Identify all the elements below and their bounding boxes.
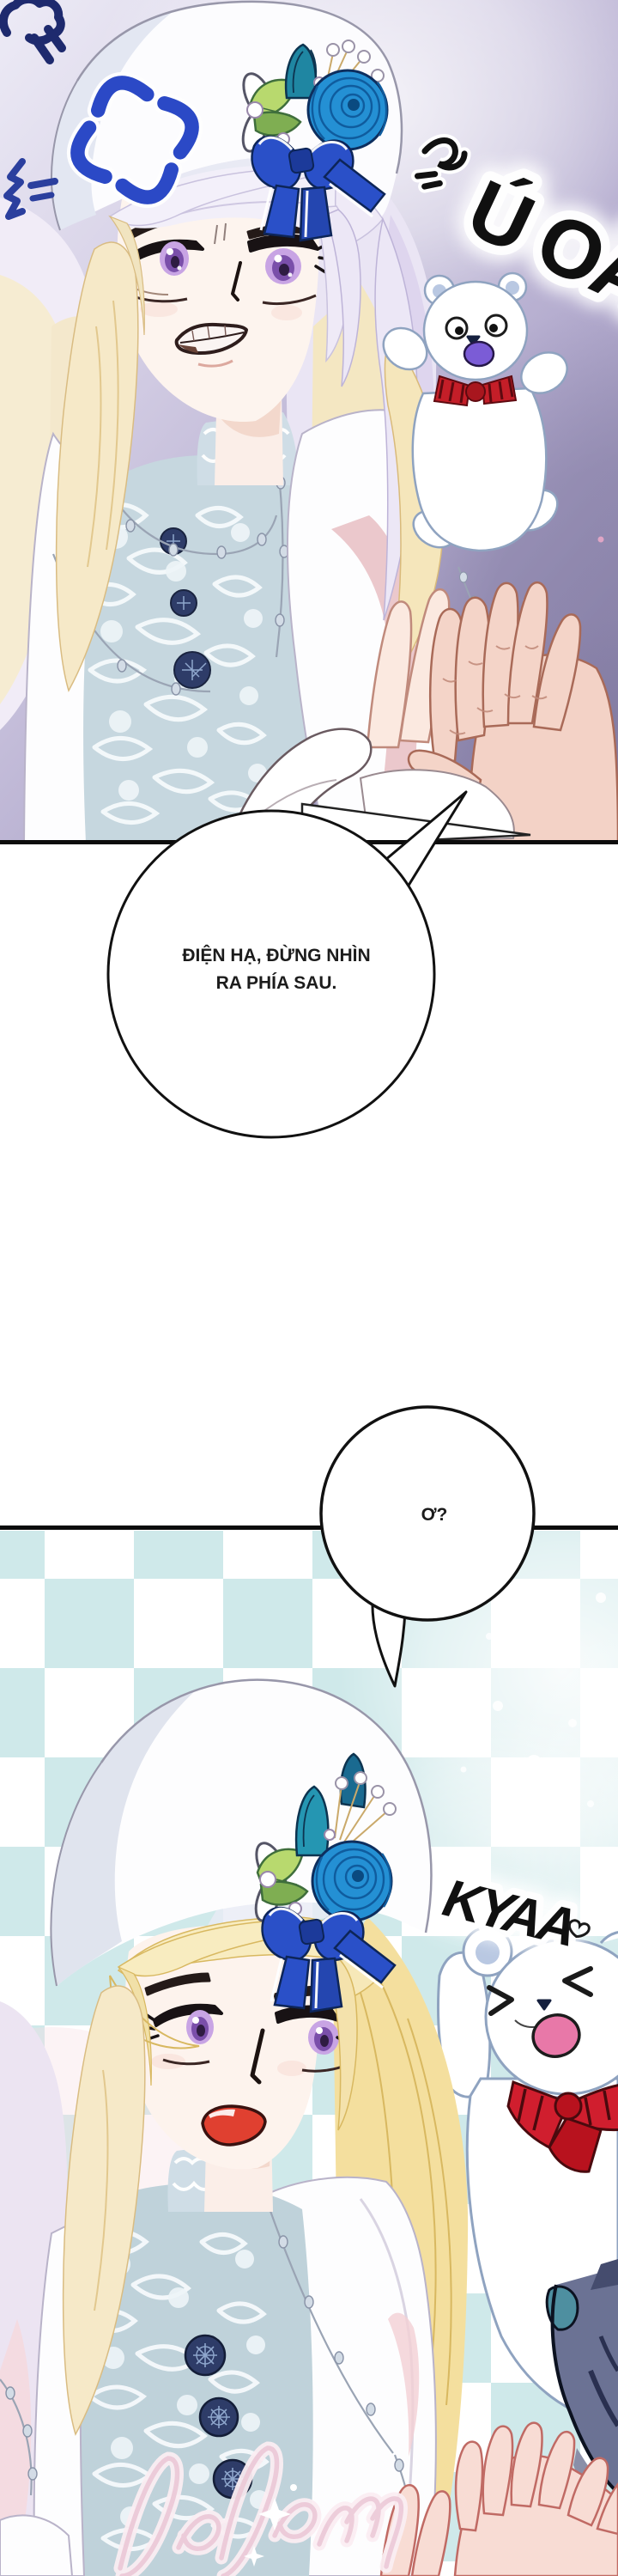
svg-text:RA PHÍA SAU.: RA PHÍA SAU.	[216, 973, 337, 993]
svg-text:ĐIỆN HẠ, ĐỪNG NHÌN: ĐIỆN HẠ, ĐỪNG NHÌN	[182, 945, 370, 965]
svg-text:Ơ?: Ơ?	[421, 1505, 448, 1525]
